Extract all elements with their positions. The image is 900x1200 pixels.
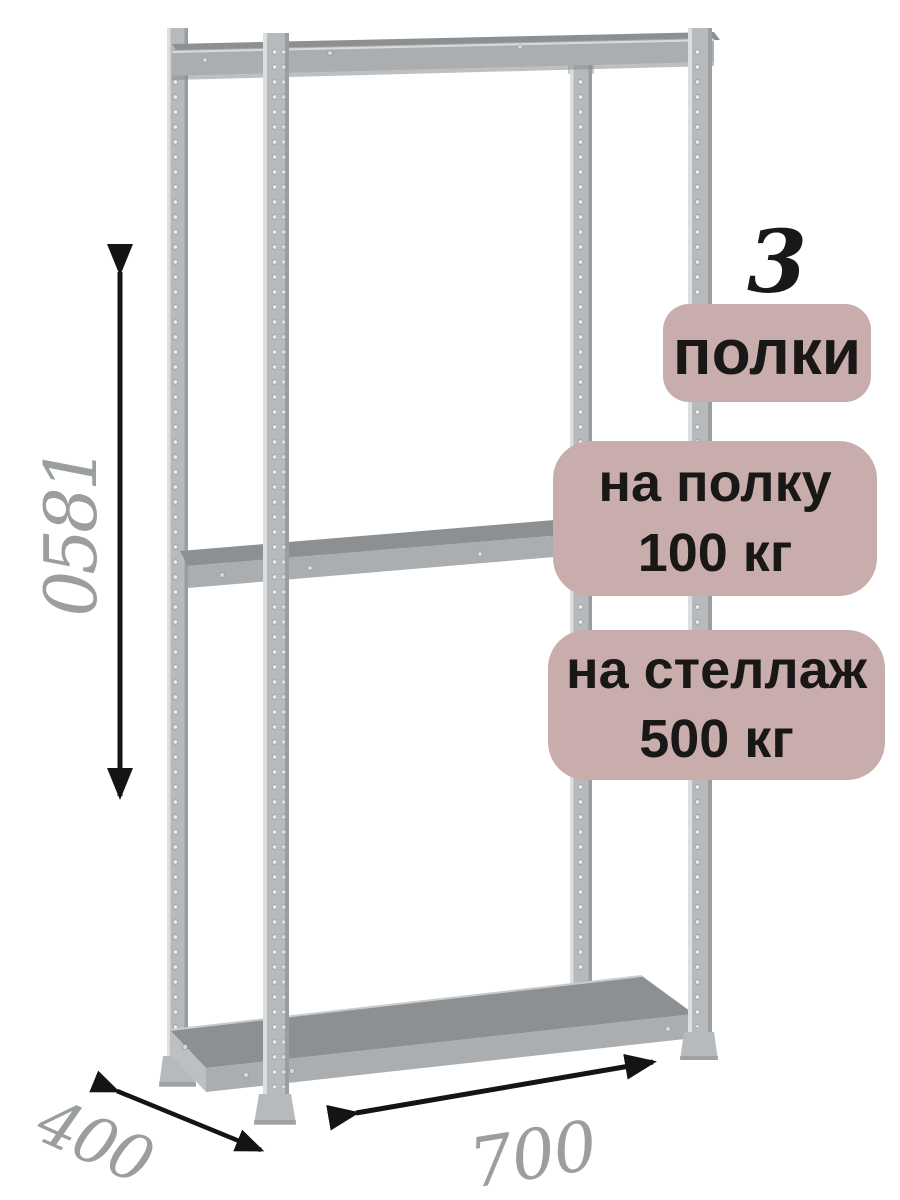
shelf-count-badge: полки [663, 304, 871, 402]
width-dimension-label: 700 [465, 1113, 601, 1200]
per-rack-load-line2: 500 кг [639, 705, 794, 774]
shelf-count-number: 3 [747, 220, 807, 306]
shelving-rack-illustration [0, 0, 900, 1200]
height-dimension-label: 0581 [35, 449, 107, 616]
shelf-top-level [172, 32, 720, 80]
per-shelf-load-badge: на полку 100 кг [553, 441, 877, 596]
per-rack-load-line1: на стеллаж [566, 636, 867, 705]
per-rack-load-badge: на стеллаж 500 кг [548, 630, 885, 780]
product-image: 0581 400 700 3 полки на полку 100 кг на … [0, 0, 900, 1200]
per-shelf-load-line2: 100 кг [638, 519, 793, 588]
per-shelf-load-line1: на полку [598, 449, 831, 518]
shelf-count-badge-label: полки [673, 312, 861, 394]
shelf-bottom-level [170, 976, 694, 1092]
